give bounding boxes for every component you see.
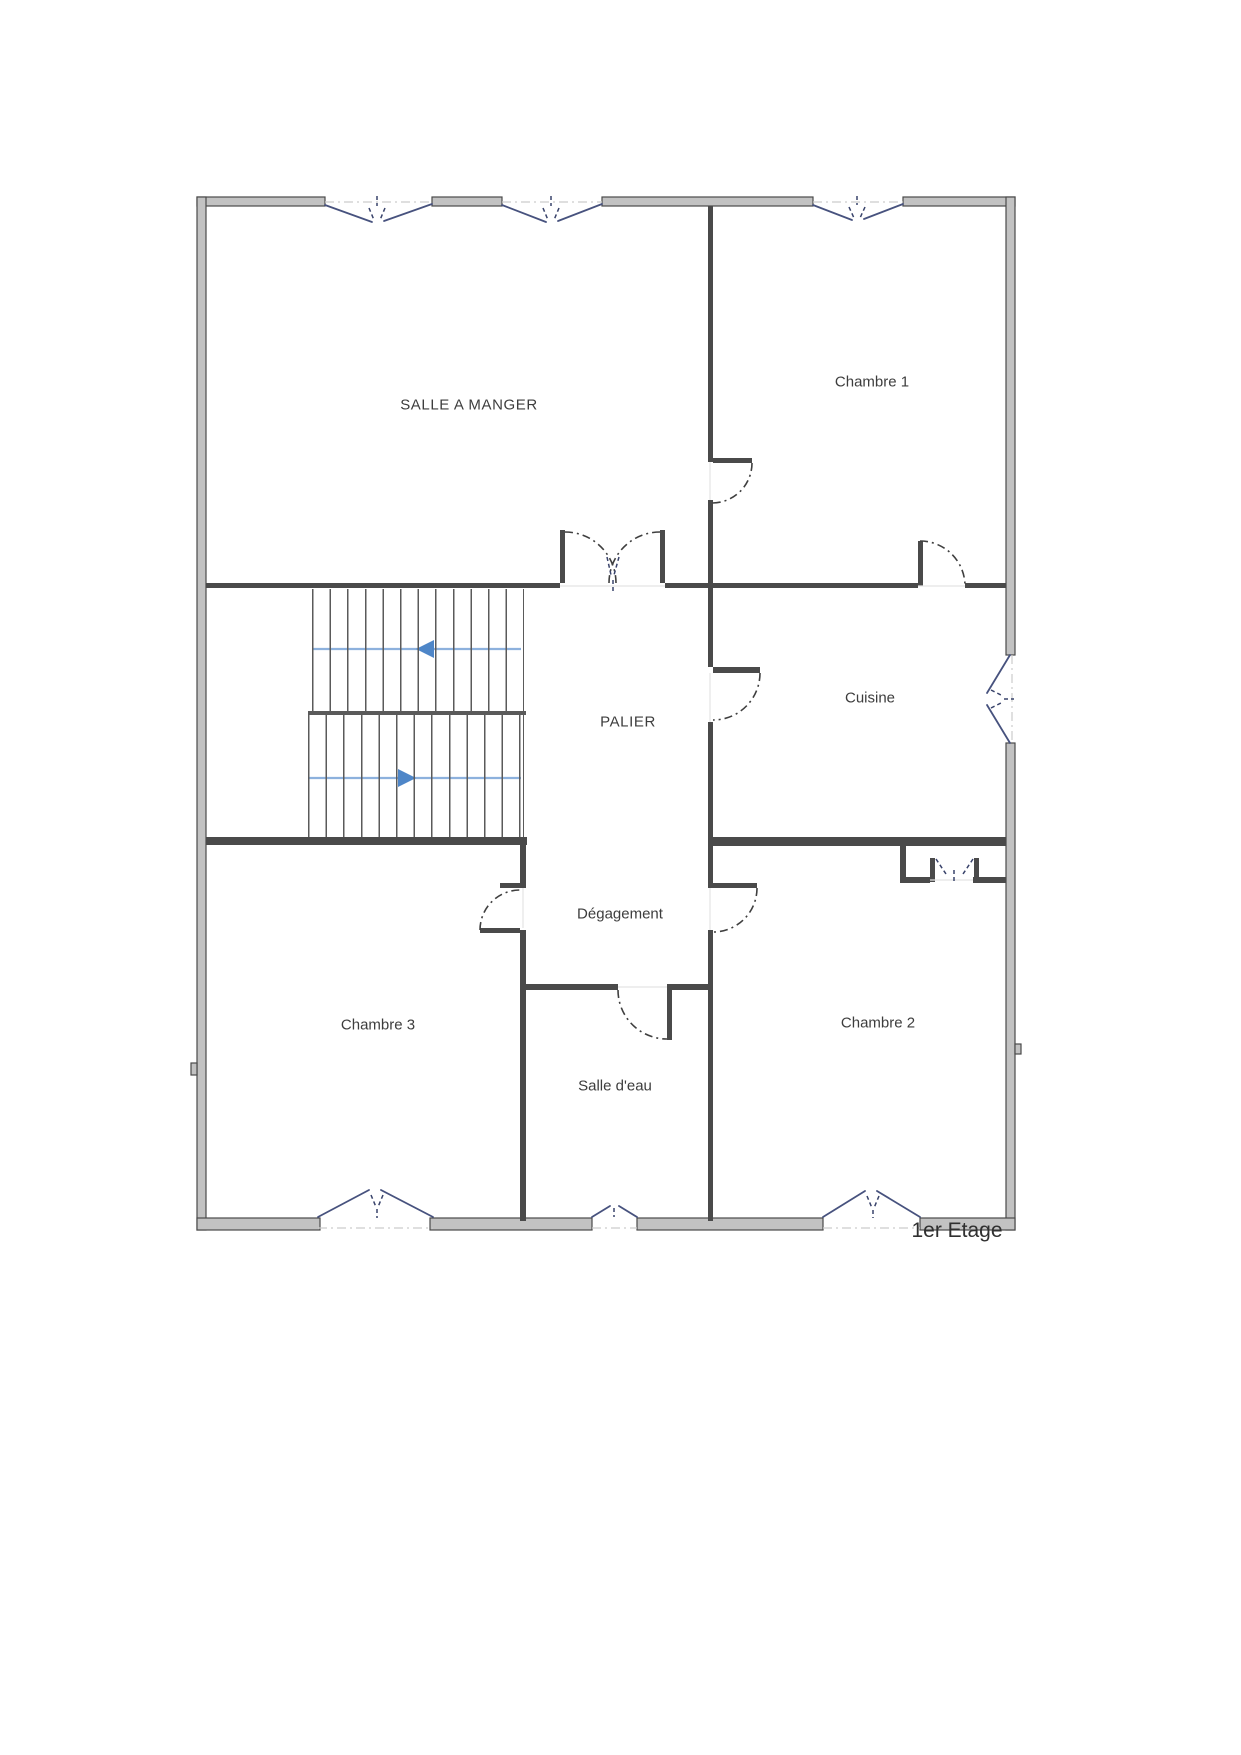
stairs-lower-flight — [308, 715, 524, 837]
room-label-cuisine: Cuisine — [845, 690, 895, 707]
window-top-2 — [502, 196, 602, 222]
floor-plan-drawing — [0, 0, 1241, 1755]
room-label-chambre-1: Chambre 1 — [835, 374, 909, 391]
room-label-salle-d-eau: Salle d'eau — [578, 1078, 652, 1095]
cuisine-door-arc — [713, 673, 760, 720]
room-label-degagement: Dégagement — [577, 906, 663, 923]
double-door-arc-left — [565, 532, 616, 583]
double-door-arc-right — [609, 532, 660, 583]
room-label-salle-a-manger: SALLE A MANGER — [400, 397, 538, 414]
chambre1-door-arc — [712, 463, 752, 503]
window-bottom-chambre3 — [318, 1190, 433, 1228]
chambre1-south-door-arc — [920, 541, 965, 586]
room-label-chambre-3: Chambre 3 — [341, 1017, 415, 1034]
room-label-chambre-2: Chambre 2 — [841, 1015, 915, 1032]
chambre3-door-arc — [480, 890, 520, 930]
floor-plan: SALLE A MANGER Chambre 1 Cuisine PALIER … — [0, 0, 1241, 1755]
chambre2-door-arc — [713, 888, 757, 932]
doors — [480, 463, 973, 1039]
salle-deau-door-arc — [618, 990, 667, 1039]
window-top-3 — [813, 196, 903, 220]
window-bottom-chambre2 — [823, 1191, 920, 1228]
window-cuisine-right — [987, 655, 1014, 743]
stairs-upper-flight — [312, 589, 524, 711]
window-bottom-salle-deau — [592, 1206, 637, 1228]
floor-title: 1er Etage — [911, 1219, 1002, 1243]
room-label-palier: PALIER — [600, 714, 656, 731]
window-top-1 — [325, 196, 432, 222]
